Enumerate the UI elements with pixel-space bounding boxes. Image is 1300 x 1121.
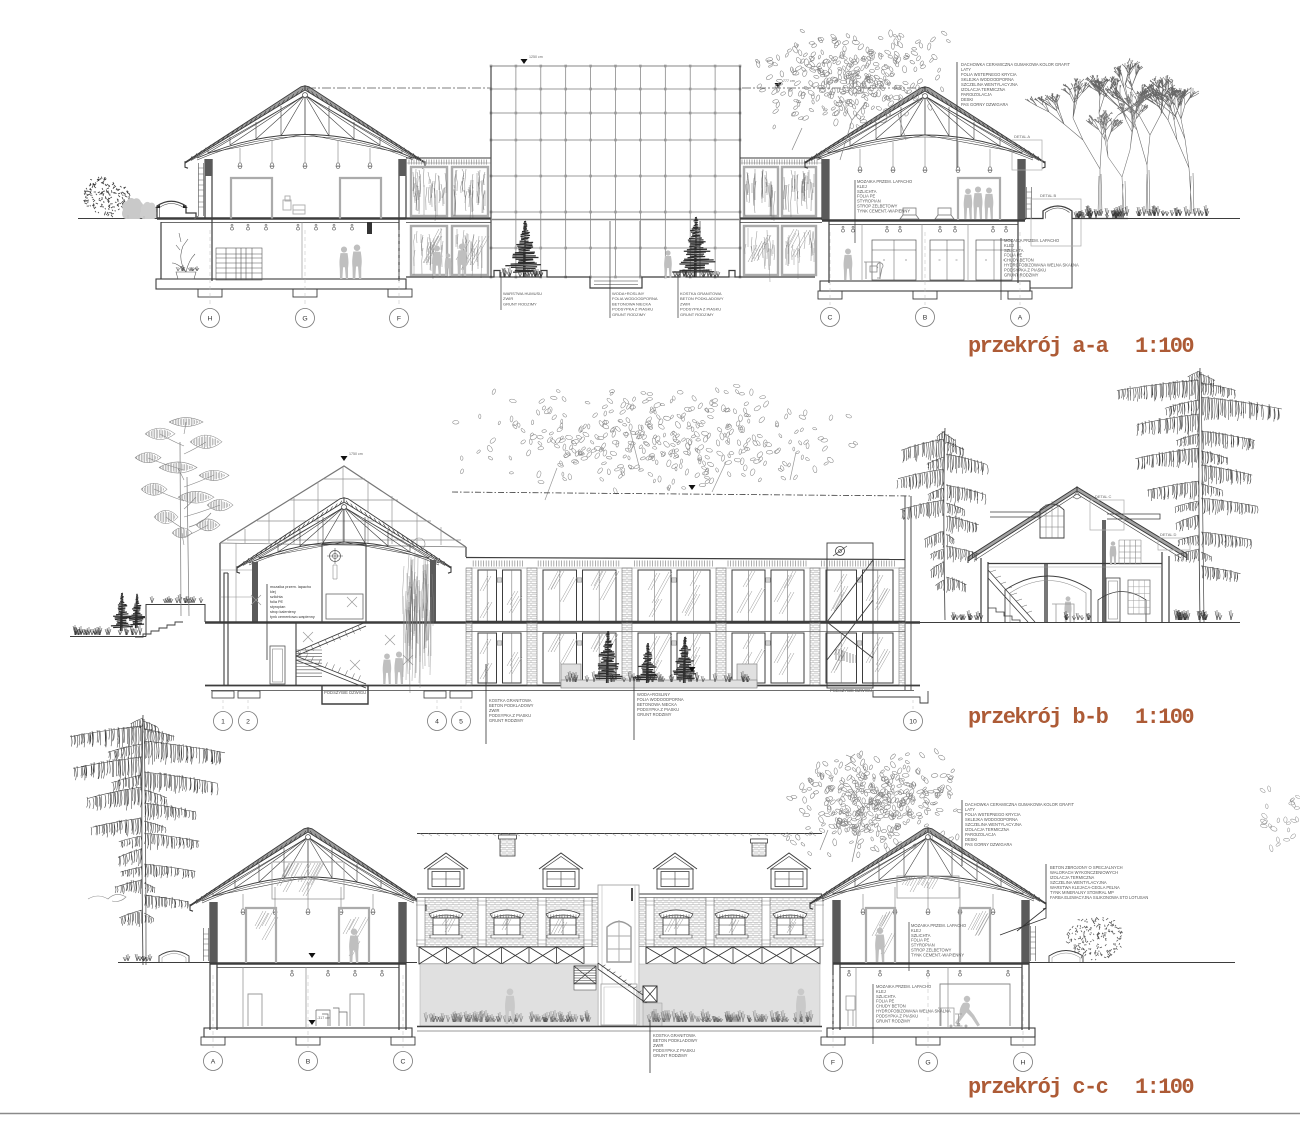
svg-text:DACHOWKA CERAMICZNA GUMAKOWA K: DACHOWKA CERAMICZNA GUMAKOWA KOLOR GRAFI… — [961, 62, 1071, 67]
svg-text:1:100: 1:100 — [1135, 705, 1193, 730]
svg-text:TYNK CEMENT.-WAPIENNY: TYNK CEMENT.-WAPIENNY — [857, 208, 910, 213]
svg-text:przekrój a-a: przekrój a-a — [968, 334, 1109, 359]
svg-text:C: C — [828, 315, 833, 322]
svg-text:GRUNT RODZIMY: GRUNT RODZIMY — [637, 712, 672, 717]
svg-text:DACHOWKA CERAMICZNA GUMAKOWA K: DACHOWKA CERAMICZNA GUMAKOWA KOLOR GRAFI… — [965, 802, 1075, 807]
svg-text:H: H — [1021, 1060, 1026, 1067]
svg-text:G: G — [925, 1060, 930, 1067]
svg-text:DETAL A: DETAL A — [1014, 134, 1030, 139]
svg-text:H: H — [208, 316, 213, 323]
svg-text:1250 cm: 1250 cm — [529, 55, 543, 59]
svg-text:GRUNT RODZIMY: GRUNT RODZIMY — [1004, 272, 1039, 277]
svg-text:2: 2 — [246, 719, 250, 726]
svg-text:1: 1 — [221, 719, 225, 726]
svg-text:GRUNT RODZIMY: GRUNT RODZIMY — [503, 301, 537, 306]
svg-text:mozaika przem. lapacho: mozaika przem. lapacho — [270, 585, 311, 589]
svg-text:A: A — [1018, 315, 1023, 322]
svg-text:przekrój b-b: przekrój b-b — [968, 705, 1109, 730]
svg-text:strop kalenteny: strop kalenteny — [270, 610, 296, 614]
svg-text:PODSZYBIE DZWIGU: PODSZYBIE DZWIGU — [830, 688, 872, 693]
svg-text:klej: klej — [270, 590, 276, 594]
svg-text:DETAL D: DETAL D — [1160, 532, 1177, 537]
svg-text:F: F — [397, 316, 401, 323]
svg-text:GRUNT RODZIMY: GRUNT RODZIMY — [653, 1053, 688, 1058]
svg-text:4: 4 — [435, 719, 439, 726]
svg-text:B: B — [306, 1059, 311, 1066]
svg-text:PODSZYBIE DZWIGU: PODSZYBIE DZWIGU — [324, 690, 366, 695]
svg-text:DETAL C: DETAL C — [1095, 494, 1112, 499]
svg-text:GRUNT RODZIMY: GRUNT RODZIMY — [680, 312, 714, 317]
svg-text:GRUNT RODZIMY: GRUNT RODZIMY — [876, 1018, 911, 1023]
svg-text:777 cm: 777 cm — [783, 79, 795, 83]
svg-text:FARBA ELEWACYJNA SILIKONOWA ST: FARBA ELEWACYJNA SILIKONOWA STO LOTUSAN — [1050, 895, 1148, 900]
svg-text:1:100: 1:100 — [1135, 1075, 1193, 1100]
svg-text:10: 10 — [909, 719, 917, 726]
svg-text:1:100: 1:100 — [1135, 334, 1193, 359]
svg-text:C: C — [401, 1059, 406, 1066]
svg-text:1750 cm: 1750 cm — [349, 452, 363, 456]
svg-text:GRUNT RODZIMY: GRUNT RODZIMY — [612, 312, 646, 317]
svg-text:tynk cementowo-wapienny: tynk cementowo-wapienny — [270, 615, 315, 619]
svg-text:A: A — [211, 1059, 216, 1066]
svg-text:DETAL B: DETAL B — [1040, 193, 1057, 198]
svg-text:przekrój c-c: przekrój c-c — [968, 1075, 1108, 1100]
svg-text:styropian: styropian — [270, 605, 285, 609]
svg-text:PAS GORNY DZWIGARA: PAS GORNY DZWIGARA — [961, 102, 1008, 107]
svg-text:PAS GORNY DZWIGARA: PAS GORNY DZWIGARA — [965, 842, 1012, 847]
svg-text:B: B — [923, 315, 928, 322]
svg-text:szlichta: szlichta — [270, 595, 284, 599]
svg-text:GRUNT RODZIMY: GRUNT RODZIMY — [489, 718, 524, 723]
svg-text:TYNK CEMENT.-WAPIENNY: TYNK CEMENT.-WAPIENNY — [911, 952, 964, 957]
svg-text:F: F — [831, 1060, 835, 1067]
svg-text:folia PE: folia PE — [270, 600, 284, 604]
svg-text:G: G — [302, 316, 307, 323]
svg-text:5: 5 — [459, 719, 463, 726]
